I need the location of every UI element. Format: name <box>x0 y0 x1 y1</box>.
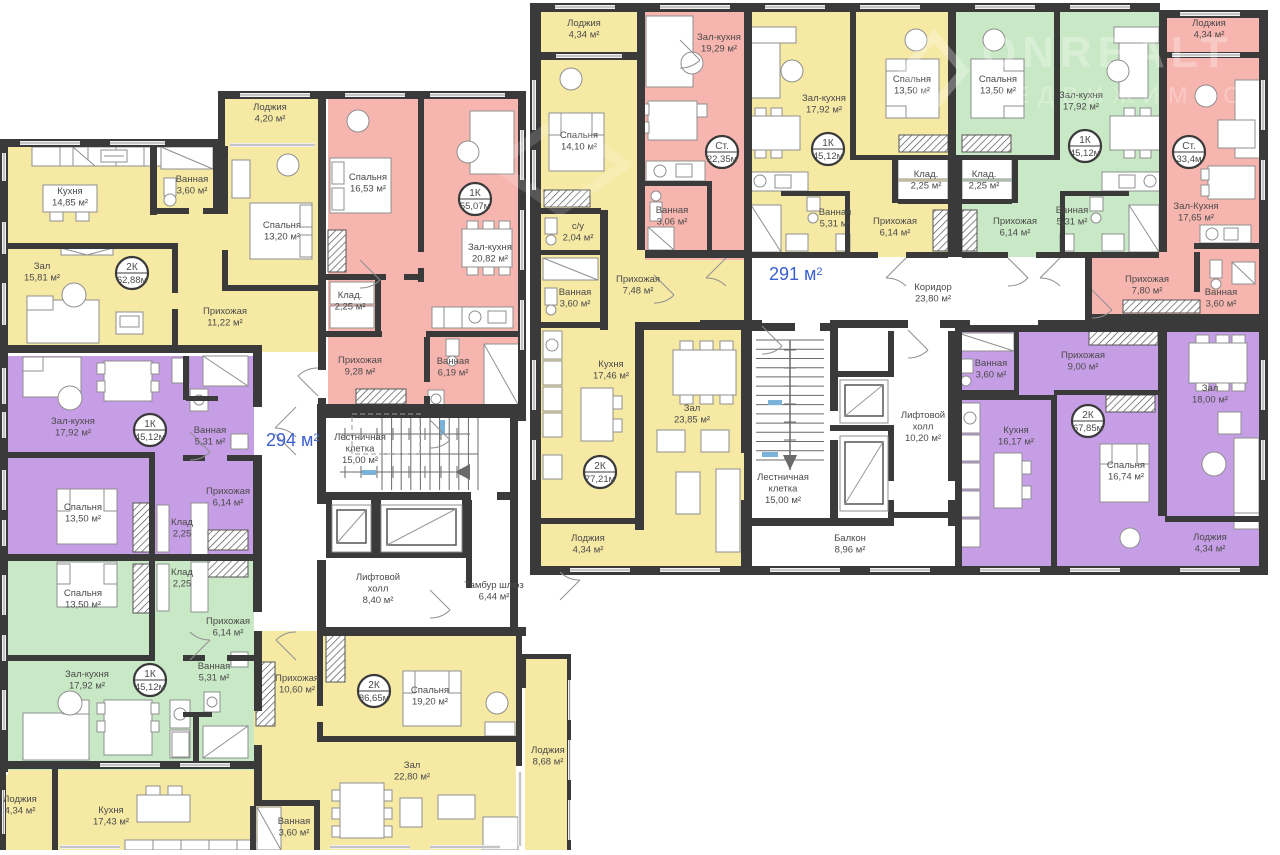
svg-text:Зал-Кухня17,65 м²: Зал-Кухня17,65 м² <box>1173 201 1218 224</box>
svg-text:Клад.2,25 м²: Клад.2,25 м² <box>335 290 366 313</box>
svg-text:Коридор23,80 м²: Коридор23,80 м² <box>914 282 952 305</box>
svg-text:Зал-кухня19,29 м²: Зал-кухня19,29 м² <box>697 32 741 55</box>
svg-text:Спальня13,20 м²: Спальня13,20 м² <box>263 220 301 243</box>
svg-text:Лоджия4,34 м²: Лоджия4,34 м² <box>3 794 37 817</box>
svg-text:2К: 2К <box>594 461 606 472</box>
svg-text:Ванная6,19 м²: Ванная6,19 м² <box>437 356 470 379</box>
svg-text:Спальня13,50 м²: Спальня13,50 м² <box>64 588 102 611</box>
svg-text:77,21м: 77,21м <box>585 474 615 485</box>
svg-text:Лоджия4,20 м²: Лоджия4,20 м² <box>253 102 287 125</box>
svg-text:45,12м: 45,12м <box>135 432 165 443</box>
svg-text:Спальня19,20 м²: Спальня19,20 м² <box>411 685 449 708</box>
svg-text:Лоджия4,34 м²: Лоджия4,34 м² <box>571 533 605 556</box>
svg-text:Зал-кухня17,92 м²: Зал-кухня17,92 м² <box>65 669 109 692</box>
svg-text:Прихожая9,28 м²: Прихожая9,28 м² <box>338 355 382 378</box>
svg-text:Ванная3,60 м²: Ванная3,60 м² <box>278 816 311 839</box>
svg-text:1К: 1К <box>144 669 156 680</box>
svg-text:1К: 1К <box>1079 135 1091 146</box>
svg-text:Ванная5,31 м²: Ванная5,31 м² <box>194 425 227 448</box>
svg-text:2К: 2К <box>368 680 380 691</box>
svg-text:Кухня17,46 м²: Кухня17,46 м² <box>593 359 629 382</box>
svg-text:Прихожая9,00 м²: Прихожая9,00 м² <box>1061 350 1105 373</box>
svg-text:НЕДВИЖИМОС: НЕДВИЖИМОС <box>988 82 1249 108</box>
svg-text:Спальня16,74 м²: Спальня16,74 м² <box>1107 460 1145 483</box>
svg-text:Ванная5,31 м²: Ванная5,31 м² <box>198 661 231 684</box>
svg-text:62,88м: 62,88м <box>117 275 147 286</box>
svg-text:Ванная3,60 м²: Ванная3,60 м² <box>975 358 1008 381</box>
svg-text:Зал-кухня17,92 м²: Зал-кухня17,92 м² <box>51 416 95 439</box>
svg-text:Клад2,25: Клад2,25 <box>171 567 193 590</box>
svg-text:Зал-кухня20,82 м²: Зал-кухня20,82 м² <box>468 242 512 265</box>
svg-text:Лоджия4,34 м²: Лоджия4,34 м² <box>1193 532 1227 555</box>
svg-text:55,07м: 55,07м <box>460 201 490 212</box>
svg-text:Прихожая6,14 м²: Прихожая6,14 м² <box>206 616 250 639</box>
svg-text:Ванная5,31 м²: Ванная5,31 м² <box>819 207 852 230</box>
svg-text:67,85м: 67,85м <box>1073 423 1103 434</box>
svg-text:Прихожая6,14 м²: Прихожая6,14 м² <box>873 216 917 239</box>
svg-text:Ст.: Ст. <box>1182 141 1195 152</box>
svg-text:1К: 1К <box>144 419 156 430</box>
svg-text:Спальня13,50 м²: Спальня13,50 м² <box>64 502 102 525</box>
svg-text:Лоджия4,34 м²: Лоджия4,34 м² <box>567 18 601 41</box>
svg-text:Ванная3,60 м²: Ванная3,60 м² <box>1205 287 1238 310</box>
svg-text:Балкон8,96 м²: Балкон8,96 м² <box>834 533 866 556</box>
svg-text:Кухня14,85 м²: Кухня14,85 м² <box>52 186 88 209</box>
svg-text:86,65м: 86,65м <box>359 693 389 704</box>
svg-text:Прихожая7,48 м²: Прихожая7,48 м² <box>616 274 660 297</box>
svg-text:Ванная5,31 м²: Ванная5,31 м² <box>1056 205 1089 228</box>
svg-text:ONREALT: ONREALT <box>982 28 1233 77</box>
svg-text:33,4м: 33,4м <box>1176 154 1201 165</box>
svg-text:45,12м: 45,12м <box>1070 148 1100 159</box>
svg-text:Прихожая11,22 м²: Прихожая11,22 м² <box>203 306 247 329</box>
svg-text:45,12м: 45,12м <box>135 682 165 693</box>
svg-text:Кухня17,43 м²: Кухня17,43 м² <box>93 805 129 828</box>
svg-text:Ст.: Ст. <box>715 141 728 152</box>
svg-text:1К: 1К <box>822 138 834 149</box>
svg-text:Прихожая6,14 м²: Прихожая6,14 м² <box>993 216 1037 239</box>
svg-text:Клад.2,25 м²: Клад.2,25 м² <box>911 169 942 192</box>
svg-text:1К: 1К <box>469 188 481 199</box>
svg-text:291 м2: 291 м2 <box>769 264 823 284</box>
svg-text:Спальня16,53 м²: Спальня16,53 м² <box>349 172 387 195</box>
svg-text:Прихожая10,60 м²: Прихожая10,60 м² <box>275 673 319 696</box>
svg-text:Ванная3,60 м²: Ванная3,60 м² <box>559 287 592 310</box>
svg-text:Прихожая7,80 м²: Прихожая7,80 м² <box>1125 274 1169 297</box>
svg-text:45,12м: 45,12м <box>813 151 843 162</box>
svg-text:Ванная3,06 м²: Ванная3,06 м² <box>656 205 689 228</box>
svg-text:Ванная3,60 м²: Ванная3,60 м² <box>176 174 209 197</box>
svg-text:Клад.2,25 м²: Клад.2,25 м² <box>969 169 1000 192</box>
svg-text:2К: 2К <box>126 262 138 273</box>
svg-text:Прихожая6,14 м²: Прихожая6,14 м² <box>206 486 250 509</box>
svg-text:Кухня16,17 м²: Кухня16,17 м² <box>998 425 1034 448</box>
svg-text:294 м2: 294 м2 <box>266 430 320 450</box>
svg-text:22,35м: 22,35м <box>707 154 737 165</box>
svg-text:Клад2,25: Клад2,25 <box>171 517 193 540</box>
svg-text:2К: 2К <box>1082 410 1094 421</box>
svg-text:Зал-кухня17,92 м²: Зал-кухня17,92 м² <box>802 93 846 116</box>
svg-text:Лоджия8,68 м²: Лоджия8,68 м² <box>531 745 565 768</box>
